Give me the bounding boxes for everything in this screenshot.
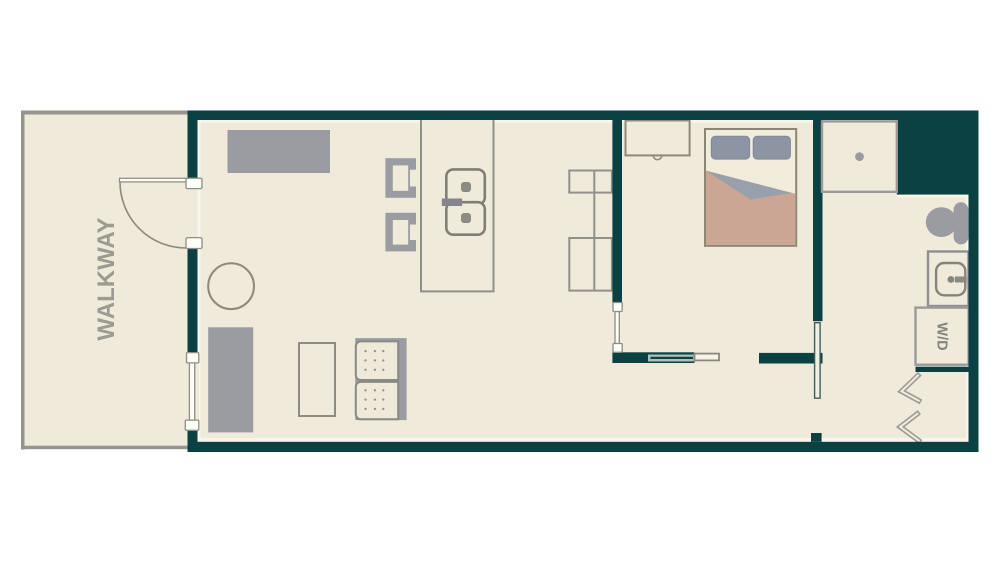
svg-text:W/D: W/D — [934, 322, 950, 350]
svg-text:WALKWAY: WALKWAY — [93, 217, 120, 340]
